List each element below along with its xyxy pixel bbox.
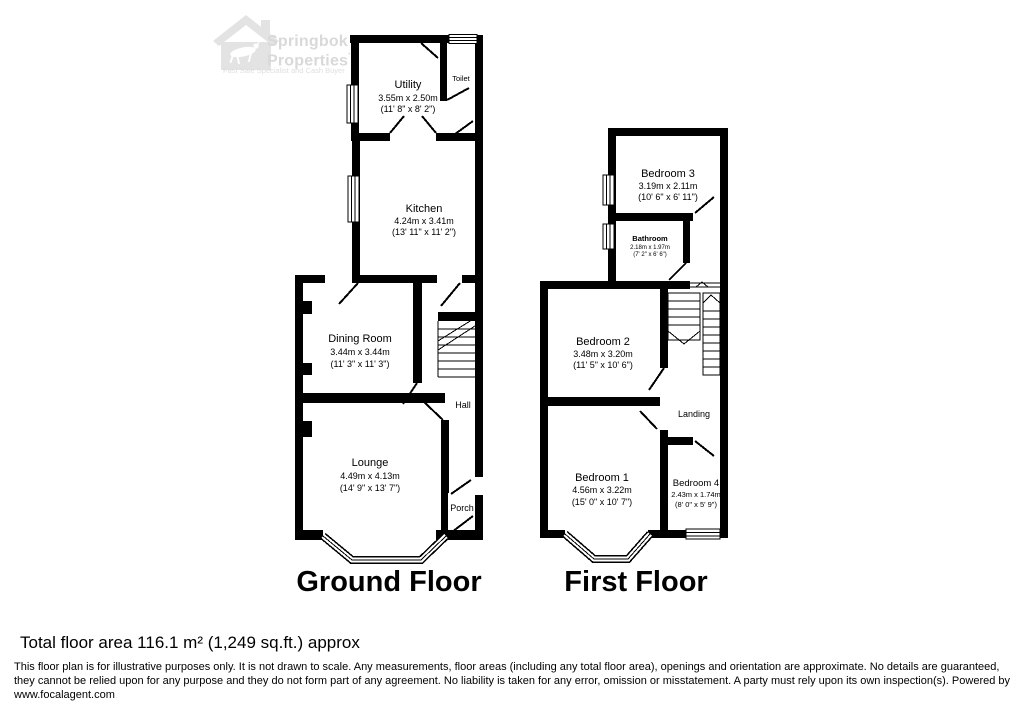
ground-floor-plan: Utility 3.55m x 2.50m (11' 8" x 8' 2") T… (295, 35, 483, 561)
total-floor-area: Total floor area 116.1 m² (1,249 sq.ft.)… (20, 633, 360, 653)
room-label-utility-imperial: (11' 8" x 8' 2") (381, 104, 436, 114)
room-label-bedroom3-name: Bedroom 3 (641, 168, 695, 180)
room-label-bedroom1-imperial: (15' 0" x 10' 7") (572, 497, 632, 507)
room-label-bedroom4-name: Bedroom 4 (673, 478, 719, 489)
ground-windows (347, 35, 477, 223)
disclaimer-text: This floor plan is for illustrative purp… (14, 660, 1016, 702)
bathroom-window (603, 224, 614, 249)
toilet-window (449, 35, 477, 44)
room-label-utility-name: Utility (395, 79, 422, 91)
room-label-bathroom-name: Bathroom (632, 234, 668, 243)
room-label-kitchen-imperial: (13' 11" x 11' 2") (392, 227, 456, 237)
room-label-lounge-metric: 4.49m x 4.13m (340, 471, 400, 481)
first-floor-title: First Floor (564, 566, 707, 599)
room-label-utility-metric: 3.55m x 2.50m (378, 93, 438, 103)
ground-stairs (438, 318, 475, 377)
room-label-bedroom2-imperial: (11' 5" x 10' 6") (573, 360, 633, 370)
porch-entrance-opening (475, 477, 483, 495)
utility-window (347, 85, 358, 123)
stairwell-railing (690, 282, 720, 287)
room-label-bedroom4-metric: 2.43m x 1.74m (671, 490, 721, 499)
room-label-bathroom-imperial: (7' 2" x 6' 6") (633, 252, 667, 258)
room-label-bedroom1-metric: 4.56m x 3.22m (572, 485, 632, 495)
room-label-lounge-name: Lounge (352, 457, 389, 469)
room-label-hall: Hall (455, 400, 471, 410)
room-label-dining-metric: 3.44m x 3.44m (330, 347, 390, 357)
first-stairs (668, 293, 720, 375)
lounge-bay-window (323, 536, 446, 560)
kitchen-window (348, 176, 359, 222)
room-label-toilet: Toilet (452, 74, 470, 83)
floor-plan-drawing: Utility 3.55m x 2.50m (11' 8" x 8' 2") T… (0, 0, 1024, 716)
room-label-dining-name: Dining Room (328, 333, 392, 345)
bedroom4-window (686, 529, 720, 539)
bedroom3-window (603, 175, 614, 205)
first-floor-plan: Bedroom 3 3.19m x 2.11m (10' 6" x 6' 11"… (540, 128, 728, 559)
floorplan-page: Springbok Properties' Fast Sale Speciali… (0, 0, 1024, 716)
room-label-kitchen-name: Kitchen (406, 203, 443, 215)
room-label-dining-imperial: (11' 3" x 11' 3") (330, 359, 389, 369)
room-label-bedroom3-imperial: (10' 6" x 6' 11") (638, 192, 698, 202)
room-label-bedroom3-metric: 3.19m x 2.11m (639, 181, 698, 191)
room-label-kitchen-metric: 4.24m x 3.41m (394, 216, 454, 226)
room-label-bedroom2-name: Bedroom 2 (576, 336, 630, 348)
room-label-porch: Porch (450, 503, 474, 513)
bedroom1-bay-window (565, 534, 650, 559)
room-label-landing: Landing (678, 409, 710, 419)
room-label-bedroom1-name: Bedroom 1 (575, 472, 629, 484)
room-label-lounge-imperial: (14' 9" x 13' 7") (340, 483, 400, 493)
room-label-bedroom2-metric: 3.48m x 3.20m (573, 349, 633, 359)
ground-floor-title: Ground Floor (296, 566, 481, 599)
room-label-bathroom-metric: 2.18m x 1.97m (630, 245, 670, 251)
room-label-bedroom4-imperial: (8' 0" x 5' 9") (675, 500, 717, 509)
